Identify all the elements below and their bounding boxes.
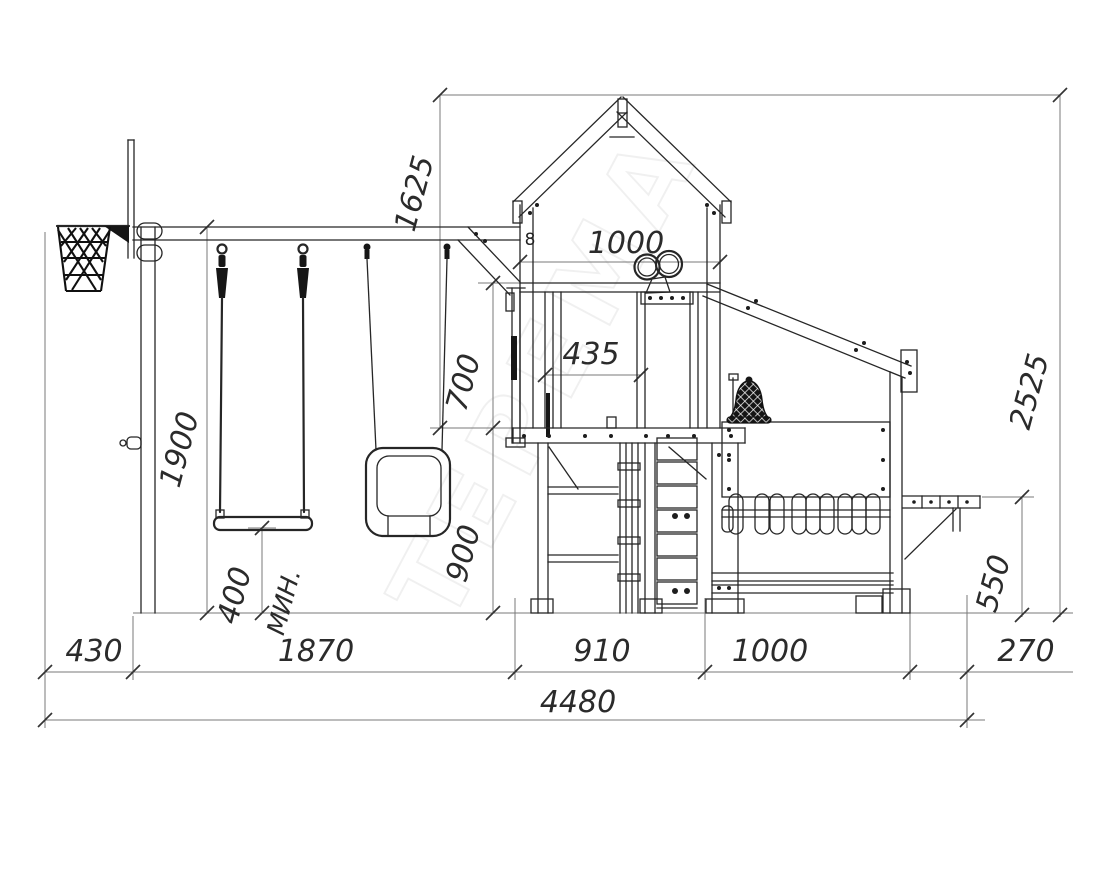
back-panel [722, 422, 890, 497]
basketball-hoop [57, 140, 162, 291]
drawing-page: ТЕРЕМА [0, 0, 1110, 879]
dim-label-910: 910 [573, 634, 630, 669]
dim-label-min: МИН. [261, 566, 306, 638]
footing [856, 596, 882, 613]
footing [640, 599, 662, 613]
dim-label-550: 550 [970, 551, 1019, 615]
flat-swing [214, 245, 312, 531]
dim-label-430: 430 [65, 634, 122, 669]
dim-label-1000-base: 1000 [732, 634, 808, 669]
post-knob [127, 437, 141, 449]
annex [703, 284, 917, 613]
dim-label-1870: 1870 [278, 634, 354, 669]
fascia-board [901, 350, 917, 392]
dim-label-1625: 1625 [388, 152, 442, 235]
platform-peg [607, 417, 616, 428]
dim-label-1900: 1900 [153, 408, 207, 491]
swing-hanger-right [297, 245, 309, 299]
bell-toy [727, 374, 771, 423]
climbing-wall [657, 438, 697, 608]
dim-label-435: 435 [562, 337, 619, 372]
dim-label-270: 270 [997, 634, 1054, 669]
basket-net [58, 227, 110, 291]
ladder [618, 443, 640, 613]
detail-8-label: 8 [525, 230, 536, 250]
dim-label-400: 400 [211, 563, 260, 627]
bench [903, 496, 980, 559]
swing-hanger-left [216, 245, 228, 299]
footing [531, 599, 553, 613]
dim-label-2525: 2525 [1003, 350, 1057, 433]
eave-board-right [722, 201, 731, 223]
elevation-drawing: ТЕРЕМА [0, 0, 1110, 879]
dim-label-4480: 4480 [540, 685, 616, 720]
abacus-beads [722, 494, 890, 534]
